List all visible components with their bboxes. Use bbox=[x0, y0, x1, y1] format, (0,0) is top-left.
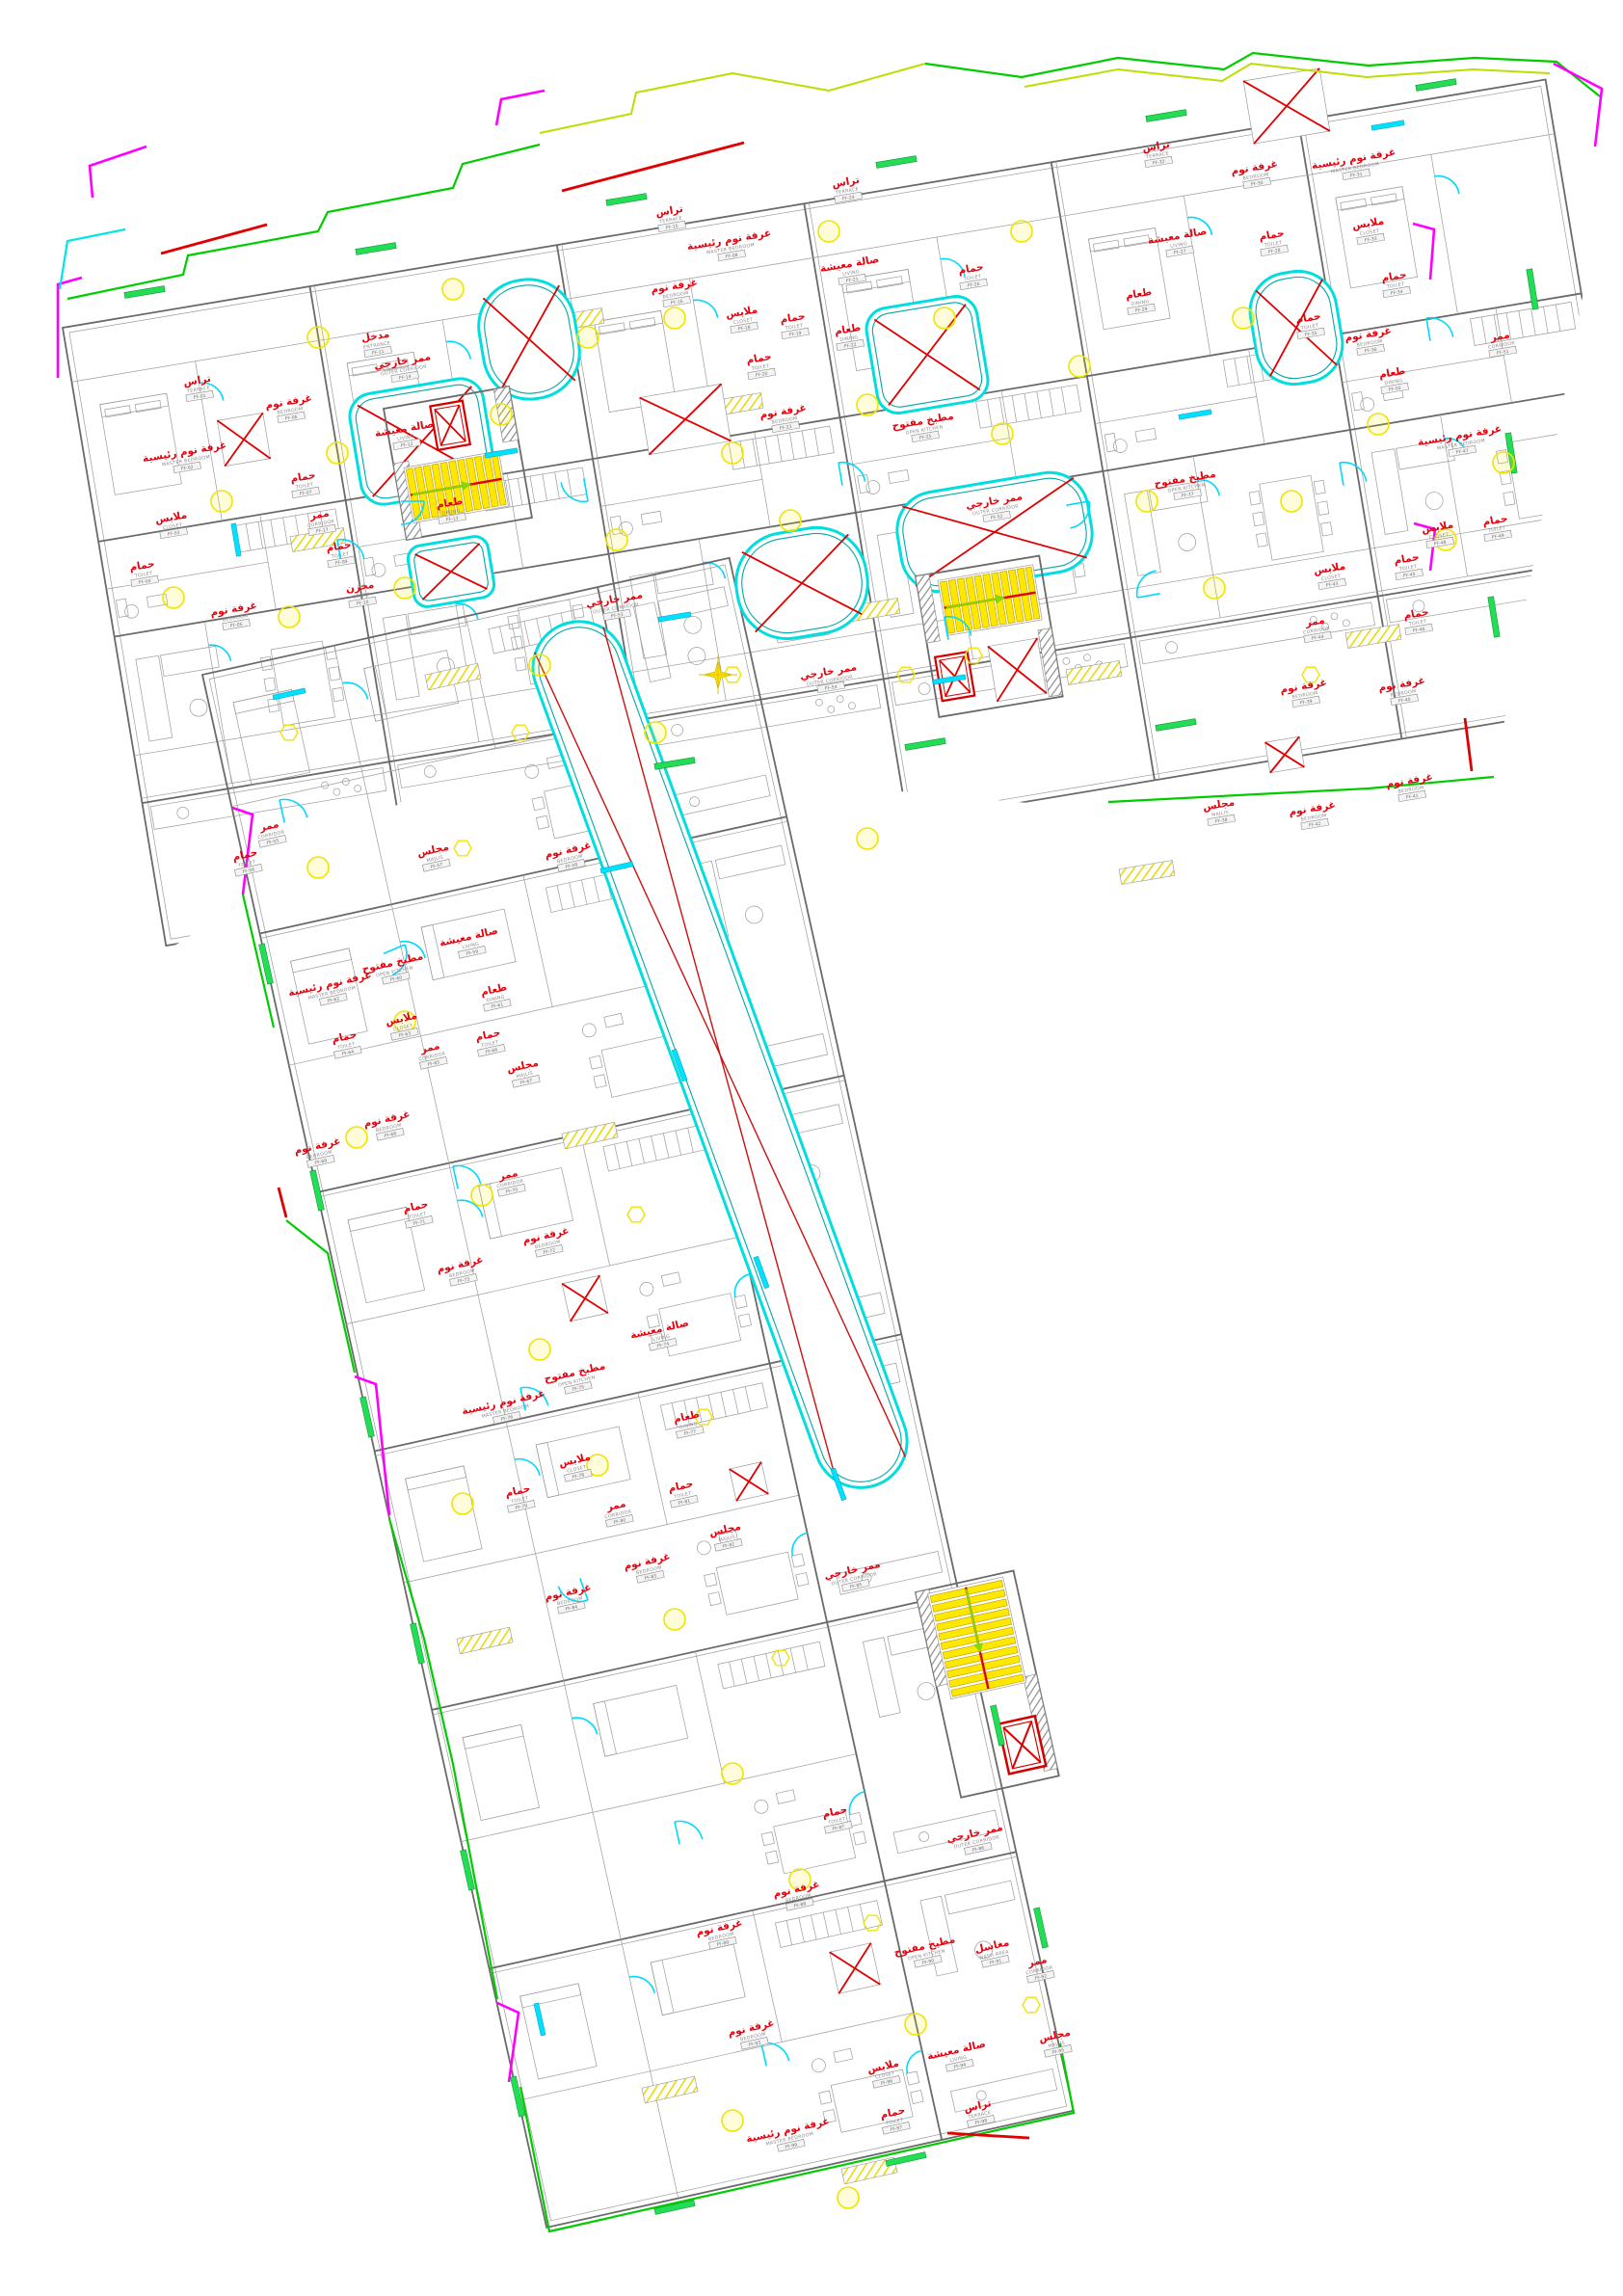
light-wells bbox=[346, 265, 1348, 1500]
room-label: غرفة نوم رئيسيةMASTER BEDROOMFF-47 bbox=[1417, 423, 1504, 462]
room-label: مجلسMAJLISFF-67 bbox=[506, 1057, 543, 1089]
room-label: ممر خارجيOUTER CORRIDORFF-14 bbox=[373, 351, 434, 385]
light-well bbox=[1244, 265, 1348, 389]
room-label: ممرCORRIDORFF-80 bbox=[601, 1497, 634, 1528]
svg-text:ممر: ممر bbox=[308, 507, 331, 521]
room-label: مجلسMAJLISFF-57 bbox=[416, 841, 453, 873]
light-well bbox=[471, 273, 586, 407]
room-label: حمامTOILETFF-45 bbox=[1393, 551, 1423, 580]
room-label: مطبخ مفتوحOPEN KITCHENFF-75 bbox=[543, 1360, 609, 1398]
room-label: حمامTOILETFF-26 bbox=[957, 261, 988, 290]
room-label: طعامDININGFF-22 bbox=[834, 322, 865, 351]
floor-plan-canvas: تراسTERRACEFF-01غرفة نوم رئيسيةMASTER BE… bbox=[0, 0, 1623, 2296]
room-label: غرفة نومBEDROOMFF-36 bbox=[1344, 325, 1394, 358]
room-label: طعامDININGFF-50 bbox=[1378, 365, 1409, 394]
room-label: مجلسMAJLISFF-95 bbox=[1038, 2027, 1075, 2059]
room-label: غرفة نومBEDROOMFF-05 bbox=[209, 600, 259, 632]
room-label: غرفة نومBEDROOMFF-16 bbox=[650, 277, 700, 309]
room-label: طعامDININGFF-29 bbox=[1125, 286, 1156, 315]
room-label: ملابسCLOSETFF-43 bbox=[1313, 560, 1348, 590]
svg-text:مجلس: مجلس bbox=[506, 1057, 540, 1076]
room-label: تراسTERRACEFF-24 bbox=[831, 174, 863, 203]
stair-core bbox=[916, 1570, 1059, 1797]
svg-text:ممر: ممر bbox=[1489, 329, 1511, 343]
room-label: غرفة نومBEDROOMFF-30 bbox=[1230, 158, 1280, 191]
room-label: حمامTOILETFF-34 bbox=[1380, 269, 1411, 298]
survey-marker bbox=[699, 655, 737, 694]
room-label: طعامDININGFF-61 bbox=[479, 981, 511, 1011]
room-label: حمامTOILETFF-04 bbox=[128, 558, 159, 587]
room-label: صالة معيشةLIVINGFF-94 bbox=[926, 2039, 990, 2076]
room-label: صالة معيشةLIVINGFF-27 bbox=[1147, 226, 1210, 260]
room-label: مطبخ مفتوحOPEN KITCHENFF-60 bbox=[360, 950, 427, 988]
room-label: مطبخ مفتوحOPEN KITCHENFF-37 bbox=[1154, 468, 1219, 503]
room-label: حمامTOILETFF-28 bbox=[1258, 227, 1289, 256]
room-label: حمامTOILETFF-09 bbox=[325, 539, 356, 568]
room-label: ملابسCLOSETFF-03 bbox=[154, 509, 190, 539]
svg-text:ملابس: ملابس bbox=[725, 304, 758, 320]
room-label: حمامTOILETFF-49 bbox=[1481, 513, 1512, 542]
room-label: غرفة نومBEDROOMFF-39 bbox=[1279, 677, 1329, 709]
svg-text:مجلس: مجلس bbox=[416, 841, 450, 860]
room-label: ملابسCLOSETFF-63 bbox=[385, 1010, 421, 1042]
room-label: غرفة نومBEDROOMFF-83 bbox=[623, 1551, 674, 1586]
light-well bbox=[729, 521, 875, 647]
room-label: ممر خارجيOUTER CORRIDORFF-85 bbox=[823, 1559, 885, 1595]
boundary-lines bbox=[58, 53, 1602, 2231]
svg-text:ملابس: ملابس bbox=[1351, 215, 1385, 231]
svg-text:مجلس: مجلس bbox=[1038, 2027, 1072, 2045]
room-label: غرفة نومBEDROOMFF-68 bbox=[362, 1108, 413, 1143]
room-label: حمامTOILETFF-81 bbox=[666, 1478, 698, 1508]
room-label: غرفة نومBEDROOMFF-40 bbox=[1377, 675, 1427, 707]
room-label: صالة معيشةLIVINGFF-21 bbox=[819, 254, 882, 288]
room-label: غرفة نوم رئيسيةMASTER BEDROOMFF-02 bbox=[142, 440, 229, 478]
room-label: حمامTOILETFF-20 bbox=[745, 351, 776, 380]
svg-text:مجلس: مجلس bbox=[1202, 796, 1236, 813]
room-label: تراسTERRACEFF-01 bbox=[182, 373, 214, 402]
room-label: تراسTERRACEFF-32 bbox=[1141, 139, 1173, 168]
room-label: ممر خارجيOUTER CORRIDORFF-86 bbox=[945, 1822, 1007, 1858]
room-label: غرفة نومBEDROOMFF-73 bbox=[436, 1254, 487, 1289]
room-label: غرفة نومBEDROOMFF-41 bbox=[1385, 771, 1435, 804]
room-label: ممرCORRIDORFF-44 bbox=[1300, 614, 1332, 643]
room-label: ممرCORRIDORFF-65 bbox=[415, 1039, 448, 1070]
room-label: ملابسCLOSETFF-18 bbox=[725, 304, 760, 334]
light-well bbox=[864, 293, 992, 416]
room-label: صالة معيشةLIVINGFF-59 bbox=[439, 925, 502, 963]
room-label: غرفة نوم رئيسيةMASTER BEDROOMFF-76 bbox=[461, 1388, 549, 1430]
wing-top bbox=[63, 80, 1623, 947]
svg-text:مخزن: مخزن bbox=[345, 579, 375, 596]
room-label: ملابسCLOSETFF-33 bbox=[1351, 215, 1387, 245]
room-label: حمامTOILETFF-19 bbox=[779, 310, 810, 339]
light-symbols bbox=[163, 221, 1514, 2208]
room-label: غرفة نوم رئيسيةMASTER BEDROOMFF-08 bbox=[686, 227, 774, 266]
room-label: ممرCORRIDORFF-55 bbox=[254, 817, 287, 848]
room-label: صالة معيشةLIVINGFF-74 bbox=[629, 1318, 693, 1355]
room-label: غرفة نوم رئيسيةMASTER BEDROOMFF-99 bbox=[745, 2116, 834, 2158]
svg-text:ملابس: ملابس bbox=[154, 509, 188, 525]
room-label: مجلسMAJLISFF-38 bbox=[1202, 796, 1237, 826]
room-label: مطبخ مفتوحOPEN KITCHENFF-25 bbox=[891, 411, 957, 445]
room-label: حمامTOILETFF-79 bbox=[503, 1482, 535, 1512]
room-label: غرفة نومBEDROOMFF-06 bbox=[264, 392, 314, 425]
room-label: حمامTOILETFF-97 bbox=[878, 2104, 910, 2134]
room-label: ممرCORRIDORFF-92 bbox=[1023, 1953, 1055, 1984]
room-label: حمامTOILETFF-87 bbox=[820, 1803, 852, 1833]
room-label: ممر خارجيOUTER CORRIDORFF-54 bbox=[799, 661, 860, 695]
room-label: حمامTOILETFF-07 bbox=[289, 469, 320, 498]
room-label: حمامTOILETFF-66 bbox=[473, 1027, 505, 1056]
room-label: تراسTERRACEFF-15 bbox=[654, 203, 686, 232]
room-label: حمامTOILETFF-46 bbox=[1402, 606, 1433, 635]
room-label: غرفة نومBEDROOMFF-69 bbox=[293, 1135, 344, 1170]
room-label: غرفة نومBEDROOMFF-42 bbox=[1288, 799, 1338, 832]
room-label: غرفة نوم رئيسيةMASTER BEDROOMFF-31 bbox=[1311, 147, 1398, 185]
room-label: مدخلENTRANCEFF-11 bbox=[360, 329, 392, 359]
room-label: غرفة نومBEDROOMFF-89 bbox=[695, 1917, 746, 1952]
room-label: مغاسلWASH AREAFF-91 bbox=[973, 1936, 1013, 1968]
room-label: مجلسMAJLISFF-82 bbox=[708, 1521, 745, 1553]
svg-text:ملابس: ملابس bbox=[866, 2058, 900, 2076]
room-label: غرفة نومBEDROOMFF-93 bbox=[727, 2017, 778, 2052]
svg-text:ملابس: ملابس bbox=[1313, 560, 1346, 576]
room-label: ملابسCLOSETFF-96 bbox=[866, 2058, 903, 2090]
room-label: حمامTOILETFF-56 bbox=[230, 846, 262, 876]
room-label: حمامTOILETFF-71 bbox=[401, 1198, 433, 1228]
room-label: ممرCORRIDORFF-17 bbox=[305, 507, 336, 536]
light-well bbox=[406, 535, 495, 609]
